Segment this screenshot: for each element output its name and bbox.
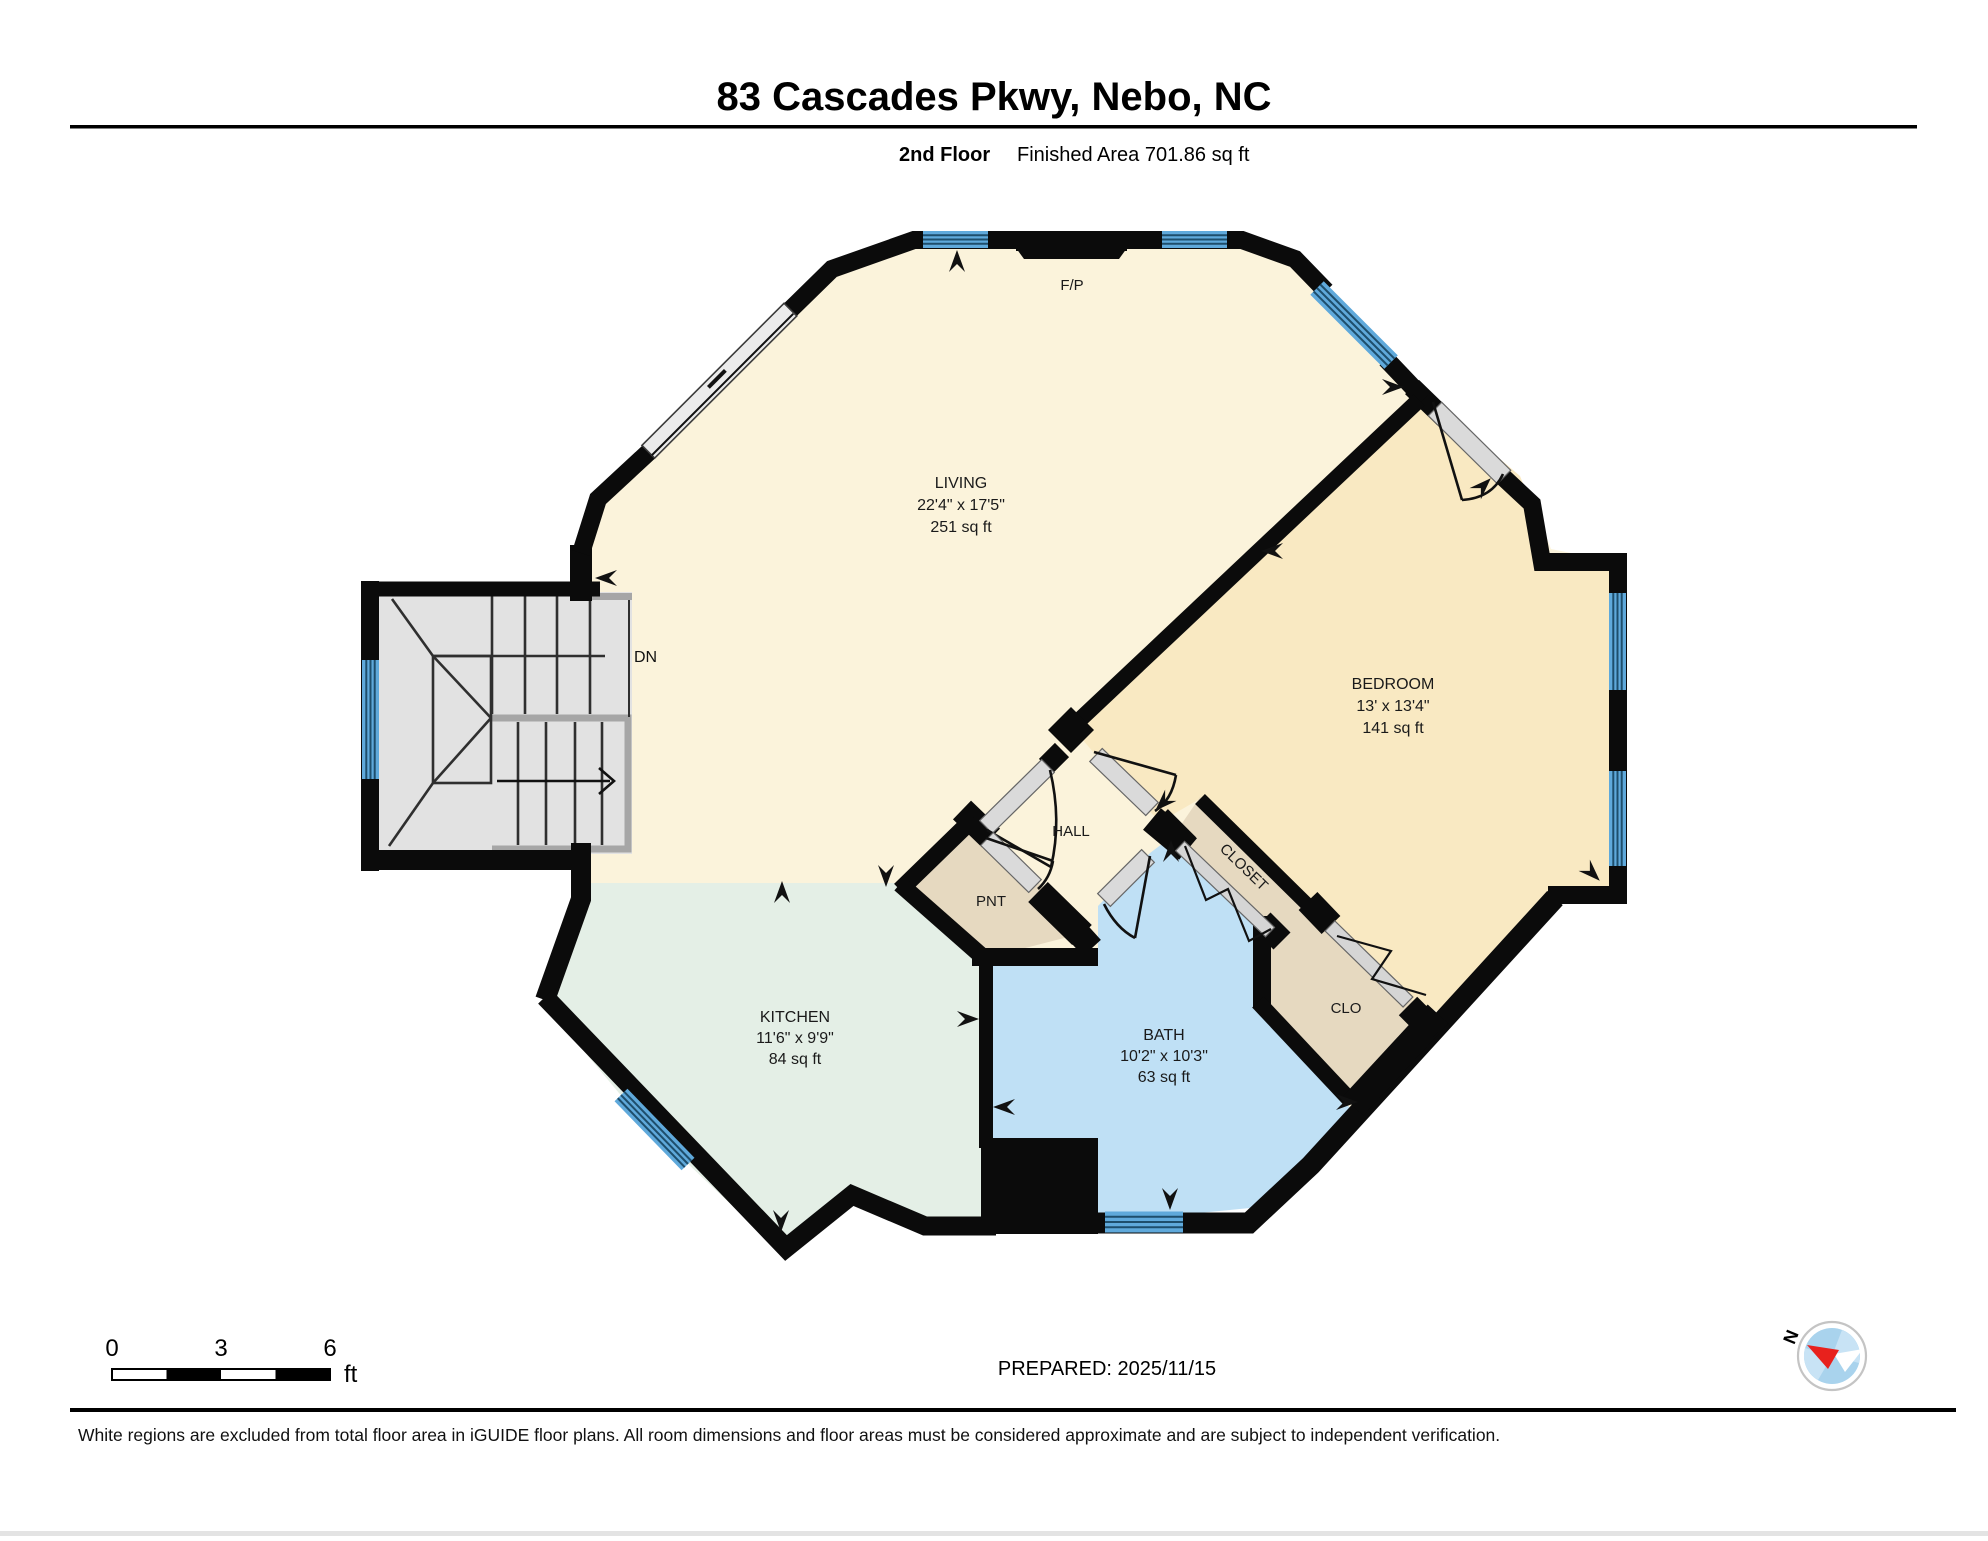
svg-text:CLO: CLO: [1331, 1000, 1362, 1017]
svg-text:DN: DN: [634, 649, 657, 666]
svg-text:0: 0: [105, 1335, 118, 1362]
svg-text:2nd Floor: 2nd Floor: [899, 144, 990, 166]
svg-text:Finished Area 701.86 sq ft: Finished Area 701.86 sq ft: [1017, 144, 1250, 166]
svg-text:LIVING: LIVING: [935, 475, 987, 492]
svg-text:White regions are excluded fro: White regions are excluded from total fl…: [78, 1425, 1500, 1445]
svg-text:13' x 13'4": 13' x 13'4": [1356, 698, 1429, 715]
svg-text:251 sq ft: 251 sq ft: [930, 519, 992, 536]
svg-text:10'2" x 10'3": 10'2" x 10'3": [1120, 1048, 1208, 1065]
svg-text:141 sq ft: 141 sq ft: [1362, 720, 1424, 737]
svg-text:84 sq ft: 84 sq ft: [769, 1051, 822, 1068]
svg-text:KITCHEN: KITCHEN: [760, 1009, 830, 1026]
svg-text:PNT: PNT: [976, 893, 1006, 910]
svg-text:ft: ft: [344, 1361, 358, 1388]
svg-text:63 sq ft: 63 sq ft: [1138, 1069, 1191, 1086]
svg-text:3: 3: [214, 1335, 227, 1362]
svg-text:BEDROOM: BEDROOM: [1352, 676, 1435, 693]
svg-text:11'6" x 9'9": 11'6" x 9'9": [756, 1030, 834, 1047]
svg-text:83 Cascades Pkwy, Nebo, NC: 83 Cascades Pkwy, Nebo, NC: [716, 75, 1271, 119]
svg-text:6: 6: [323, 1335, 336, 1362]
svg-text:HALL: HALL: [1052, 823, 1090, 840]
svg-text:F/P: F/P: [1060, 277, 1083, 294]
svg-text:PREPARED: 2025/11/15: PREPARED: 2025/11/15: [998, 1358, 1216, 1380]
svg-text:BATH: BATH: [1143, 1027, 1184, 1044]
svg-text:22'4" x 17'5": 22'4" x 17'5": [917, 497, 1005, 514]
